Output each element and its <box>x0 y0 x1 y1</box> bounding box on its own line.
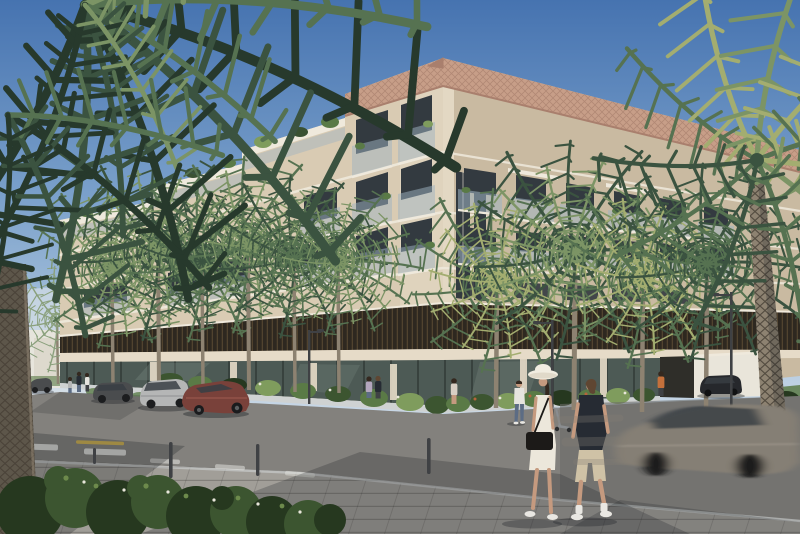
woman-shadow <box>502 520 562 529</box>
bollard <box>256 444 259 476</box>
parked-car-grey <box>91 382 135 404</box>
bollard <box>93 448 96 464</box>
man-sneaker <box>600 511 612 517</box>
white-sock <box>601 503 608 512</box>
white-sock <box>576 505 583 514</box>
orange-top-person <box>658 371 665 396</box>
architectural-rendering: Sunny architectural rendering of a moder… <box>0 0 800 534</box>
man-shadow <box>553 518 617 527</box>
planter-woman <box>451 378 458 404</box>
crossbody-bag <box>526 432 553 450</box>
woman-sneaker <box>547 514 558 520</box>
man-sneaker <box>571 514 583 520</box>
bollard <box>169 442 173 478</box>
bollard <box>427 438 431 474</box>
woman-sneaker <box>525 511 536 517</box>
parked-car-maroon <box>182 381 249 418</box>
render-canvas: Sunny architectural rendering of a moder… <box>0 0 800 534</box>
